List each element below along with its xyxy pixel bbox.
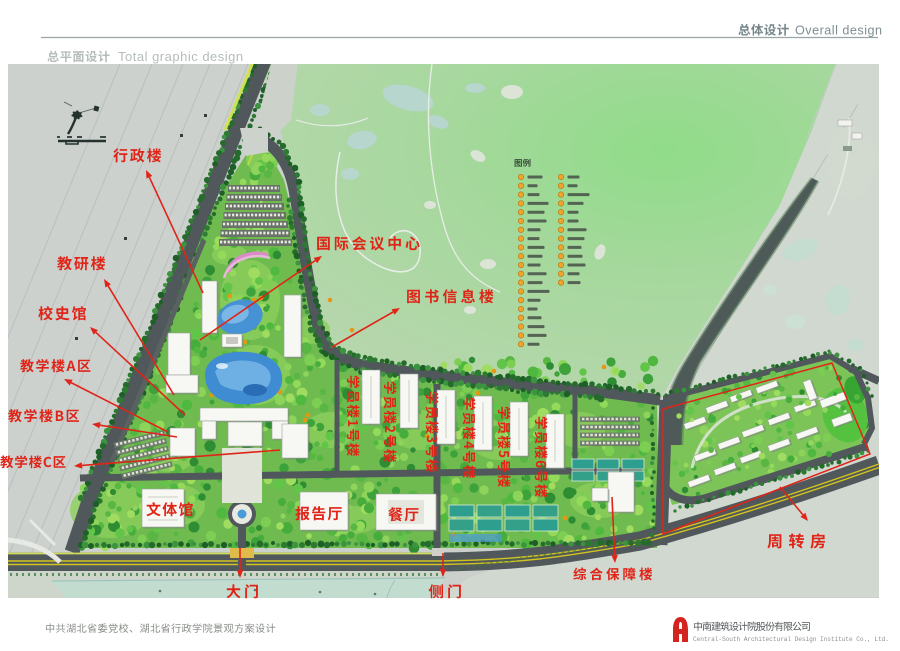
svg-text:Overall design: Overall design: [795, 24, 883, 38]
svg-text:Total graphic design: Total graphic design: [118, 49, 244, 64]
svg-text:Central-South Architectural De: Central-South Architectural Design Insti…: [693, 636, 889, 643]
